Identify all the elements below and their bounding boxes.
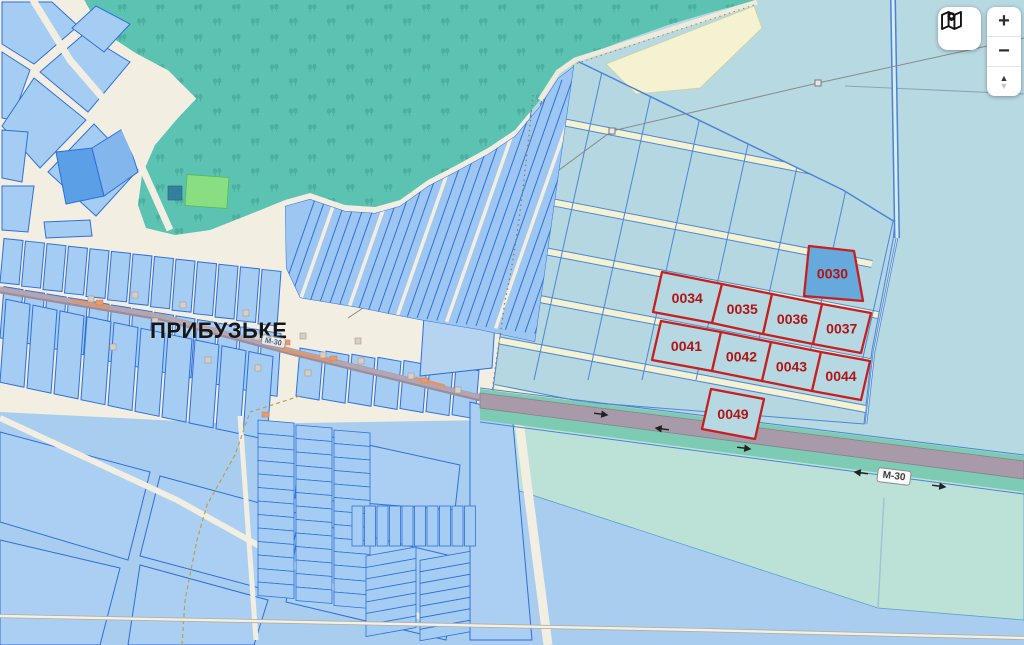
parcel-label-0043: 0043 [776,359,807,375]
zoom-in-button[interactable]: + [987,7,1021,36]
parcel-label-0049: 0049 [717,406,748,422]
map-location-icon [938,7,965,34]
zoom-control: + − ▲▼ [987,7,1021,96]
zoom-out-button[interactable]: − [987,36,1021,66]
parcel-label-0036: 0036 [777,311,808,327]
parcel-label-0035: 0035 [727,301,758,317]
map-canvas[interactable]: 0030003400350036003700410042004300440049… [0,0,1024,645]
parcel-label-0034: 0034 [672,290,703,306]
parcel-label-0041: 0041 [671,338,702,354]
parcel-label-0044: 0044 [825,368,856,384]
layers-button[interactable] [938,7,981,50]
pond-patch [168,186,182,200]
parcel-label-0042: 0042 [726,349,757,365]
grass-field [185,175,229,209]
parcel-label-0030: 0030 [817,266,848,282]
parcel-label-0037: 0037 [826,321,857,337]
tilt-control[interactable]: ▲▼ [987,66,1021,96]
tilt-down-icon: ▼ [1000,82,1009,90]
